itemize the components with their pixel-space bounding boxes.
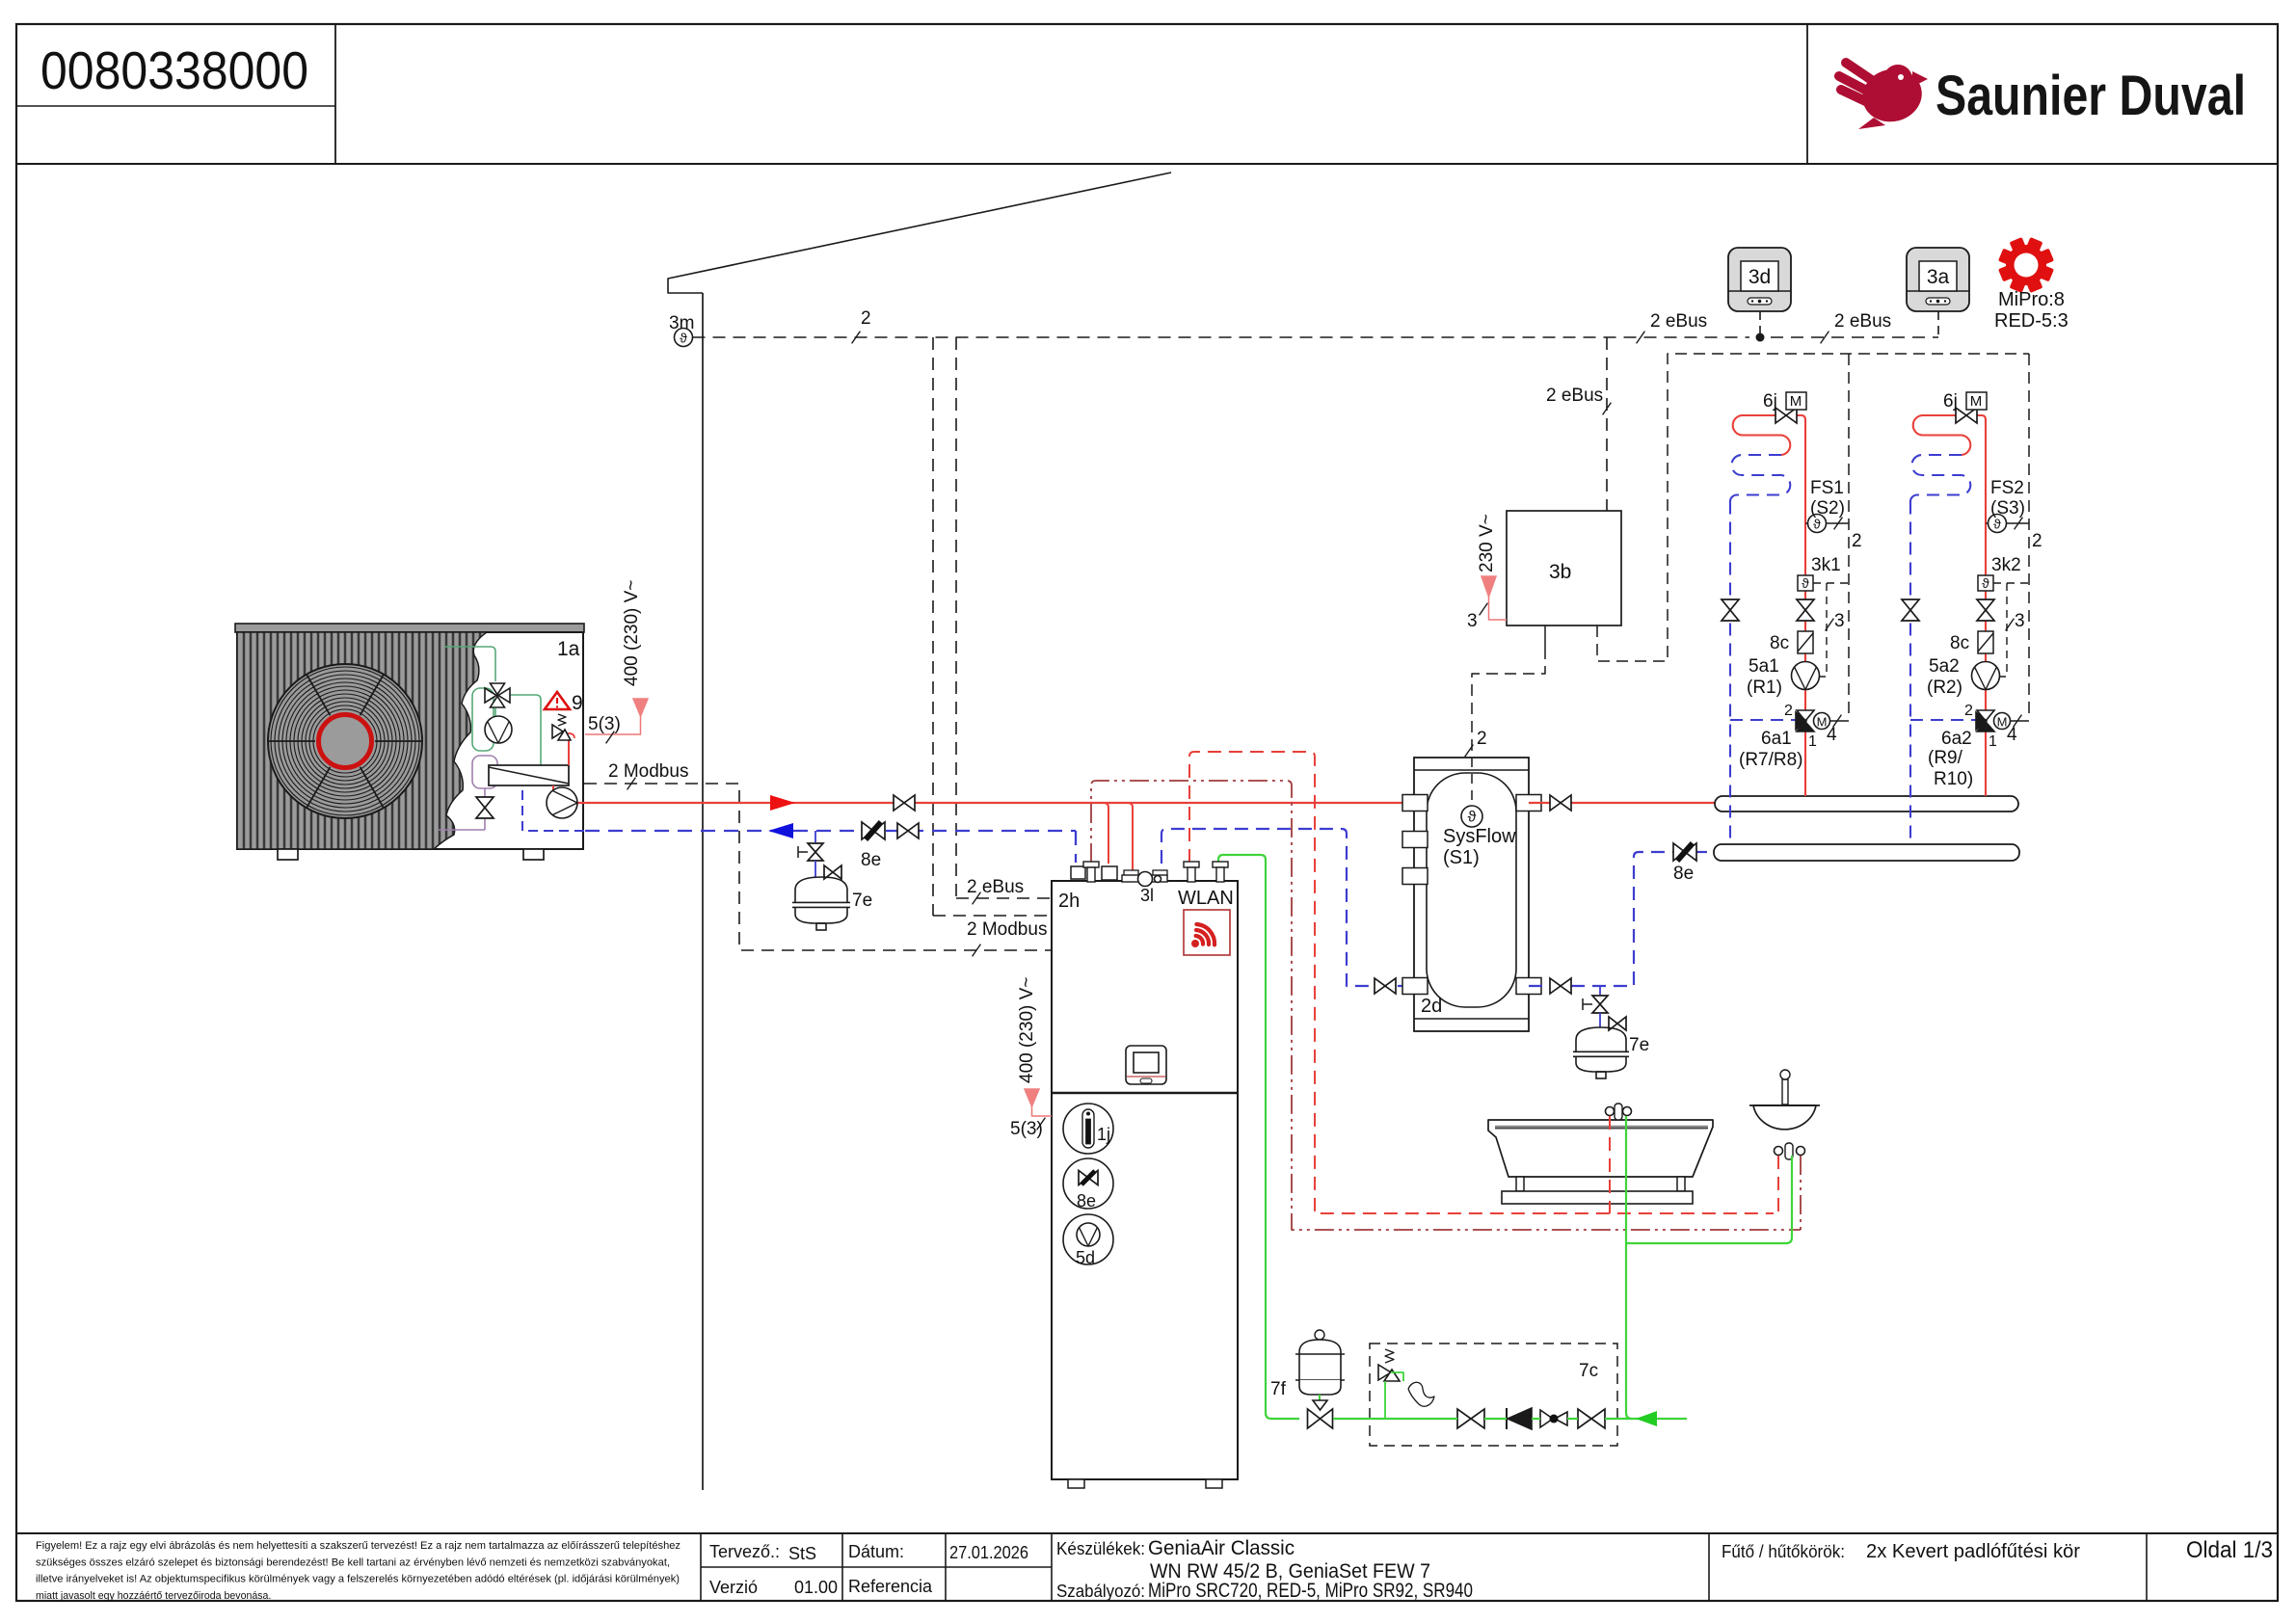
svg-text:2x Kevert padlófűtési kör: 2x Kevert padlófűtési kör — [1866, 1541, 2080, 1562]
svg-text:8c: 8c — [1950, 633, 1969, 653]
svg-text:01.00: 01.00 — [794, 1578, 838, 1597]
svg-text:1: 1 — [1808, 733, 1817, 750]
svg-text:Készülékek:: Készülékek: — [1056, 1539, 1145, 1558]
svg-text:(R2): (R2) — [1927, 678, 1962, 698]
svg-text:illetve irányelveket is! Az ob: illetve irányelveket is! Az objektumspec… — [36, 1574, 680, 1585]
svg-text:RED-5:3: RED-5:3 — [1994, 310, 2069, 332]
svg-text:M: M — [1790, 393, 1802, 410]
svg-text:FS1: FS1 — [1810, 478, 1844, 498]
svg-text:2h: 2h — [1058, 891, 1080, 912]
svg-text:ϑ: ϑ — [1802, 575, 1809, 591]
svg-text:3d: 3d — [1749, 266, 1771, 288]
svg-text:(S1): (S1) — [1443, 847, 1480, 868]
svg-text:(R7/R8): (R7/R8) — [1739, 750, 1803, 770]
svg-text:3b: 3b — [1549, 561, 1571, 583]
svg-text:2: 2 — [1784, 703, 1793, 719]
svg-text:3: 3 — [1467, 611, 1478, 631]
svg-text:SysFlow: SysFlow — [1443, 826, 1516, 847]
svg-text:1j: 1j — [1097, 1125, 1110, 1144]
svg-text:(S2): (S2) — [1810, 498, 1845, 519]
svg-text:M: M — [1997, 715, 2008, 730]
svg-text:2 eBus: 2 eBus — [967, 877, 1024, 897]
svg-text:Saunier Duval: Saunier Duval — [1936, 65, 2246, 127]
svg-text:(R1): (R1) — [1747, 678, 1782, 698]
svg-text:1: 1 — [1989, 733, 1997, 750]
svg-text:Oldal 1/3: Oldal 1/3 — [2186, 1537, 2273, 1563]
svg-text:8e: 8e — [1077, 1191, 1096, 1211]
svg-text:ϑ: ϑ — [1468, 810, 1477, 826]
svg-text:MiPro:8: MiPro:8 — [1998, 289, 2065, 310]
svg-text:9: 9 — [572, 692, 583, 714]
svg-text:MiPro SRC720, RED-5, MiPro SR9: MiPro SRC720, RED-5, MiPro SR92, SR940 — [1148, 1580, 1473, 1602]
svg-text:miatt javasolt egy hozzáértő t: miatt javasolt egy hozzáértő tervezőirod… — [36, 1590, 271, 1602]
svg-text:7e: 7e — [1629, 1035, 1649, 1055]
svg-text:5a2: 5a2 — [1929, 656, 1960, 677]
svg-text:7e: 7e — [852, 891, 872, 911]
svg-text:Dátum:: Dátum: — [848, 1542, 904, 1561]
svg-text:6j: 6j — [1763, 391, 1777, 412]
svg-text:Figyelem! Ez a rajz egy elvi á: Figyelem! Ez a rajz egy elvi ábrázolás é… — [36, 1540, 681, 1552]
svg-text:27.01.2026: 27.01.2026 — [949, 1543, 1028, 1562]
svg-text:WLAN: WLAN — [1178, 888, 1234, 909]
svg-text:8e: 8e — [861, 850, 881, 870]
svg-text:Referencia: Referencia — [848, 1577, 933, 1596]
svg-text:2d: 2d — [1421, 996, 1442, 1017]
svg-text:GeniaAir Classic: GeniaAir Classic — [1148, 1537, 1295, 1559]
svg-text:ϑ: ϑ — [1982, 575, 1989, 591]
svg-text:2: 2 — [861, 308, 871, 329]
svg-text:(S3): (S3) — [1990, 498, 2025, 519]
svg-text:8c: 8c — [1770, 633, 1789, 653]
svg-text:2 Modbus: 2 Modbus — [967, 919, 1047, 940]
svg-text:8e: 8e — [1673, 864, 1694, 884]
svg-text:R10): R10) — [1934, 769, 1973, 789]
svg-text:Verzió: Verzió — [709, 1578, 758, 1597]
svg-text:2: 2 — [2032, 531, 2042, 551]
svg-text:230 V~: 230 V~ — [1477, 514, 1497, 572]
svg-text:2: 2 — [1852, 531, 1862, 551]
svg-text:Tervező.:: Tervező.: — [709, 1542, 780, 1561]
svg-text:Fűtő / hűtőkörök:: Fűtő / hűtőkörök: — [1722, 1542, 1845, 1561]
svg-text:ϑ: ϑ — [680, 331, 687, 346]
svg-text:(R9/: (R9/ — [1928, 748, 1963, 768]
svg-text:6j: 6j — [1943, 391, 1958, 412]
svg-text:400 (230) V~: 400 (230) V~ — [622, 580, 642, 686]
svg-text:5(3): 5(3) — [1010, 1119, 1043, 1139]
svg-text:7f: 7f — [1270, 1379, 1287, 1399]
svg-text:3: 3 — [2015, 611, 2025, 631]
svg-text:3a: 3a — [1927, 266, 1950, 288]
svg-text:2 eBus: 2 eBus — [1650, 311, 1707, 332]
svg-text:3: 3 — [1834, 611, 1845, 631]
svg-text:2: 2 — [1477, 729, 1487, 749]
svg-text:4: 4 — [1827, 725, 1837, 745]
svg-text:3k2: 3k2 — [1991, 555, 2021, 575]
svg-text:5d: 5d — [1076, 1248, 1095, 1267]
svg-text:M: M — [1817, 715, 1828, 730]
svg-text:2 eBus: 2 eBus — [1546, 386, 1603, 406]
svg-text:szükséges összes elzáró szelep: szükséges összes elzáró szelepet és bizt… — [36, 1556, 670, 1568]
svg-text:Szabályozó:: Szabályozó: — [1056, 1582, 1145, 1601]
svg-text:4: 4 — [2007, 725, 2017, 745]
svg-text:0080338000: 0080338000 — [40, 40, 308, 100]
svg-text:2 Modbus: 2 Modbus — [608, 761, 688, 782]
svg-text:1a: 1a — [557, 638, 580, 660]
svg-text:6a2: 6a2 — [1941, 729, 1972, 749]
svg-text:2: 2 — [1964, 703, 1973, 719]
svg-text:3l: 3l — [1140, 886, 1154, 905]
svg-text:StS: StS — [788, 1544, 816, 1563]
svg-text:6a1: 6a1 — [1761, 729, 1792, 749]
svg-text:7c: 7c — [1579, 1361, 1598, 1381]
svg-text:5a1: 5a1 — [1749, 656, 1779, 677]
svg-text:5(3): 5(3) — [588, 714, 621, 734]
svg-text:2 eBus: 2 eBus — [1834, 311, 1891, 332]
svg-text:FS2: FS2 — [1990, 478, 2024, 498]
svg-text:3k1: 3k1 — [1811, 555, 1841, 575]
svg-text:400 (230) V~: 400 (230) V~ — [1017, 977, 1037, 1083]
svg-text:M: M — [1970, 393, 1983, 410]
